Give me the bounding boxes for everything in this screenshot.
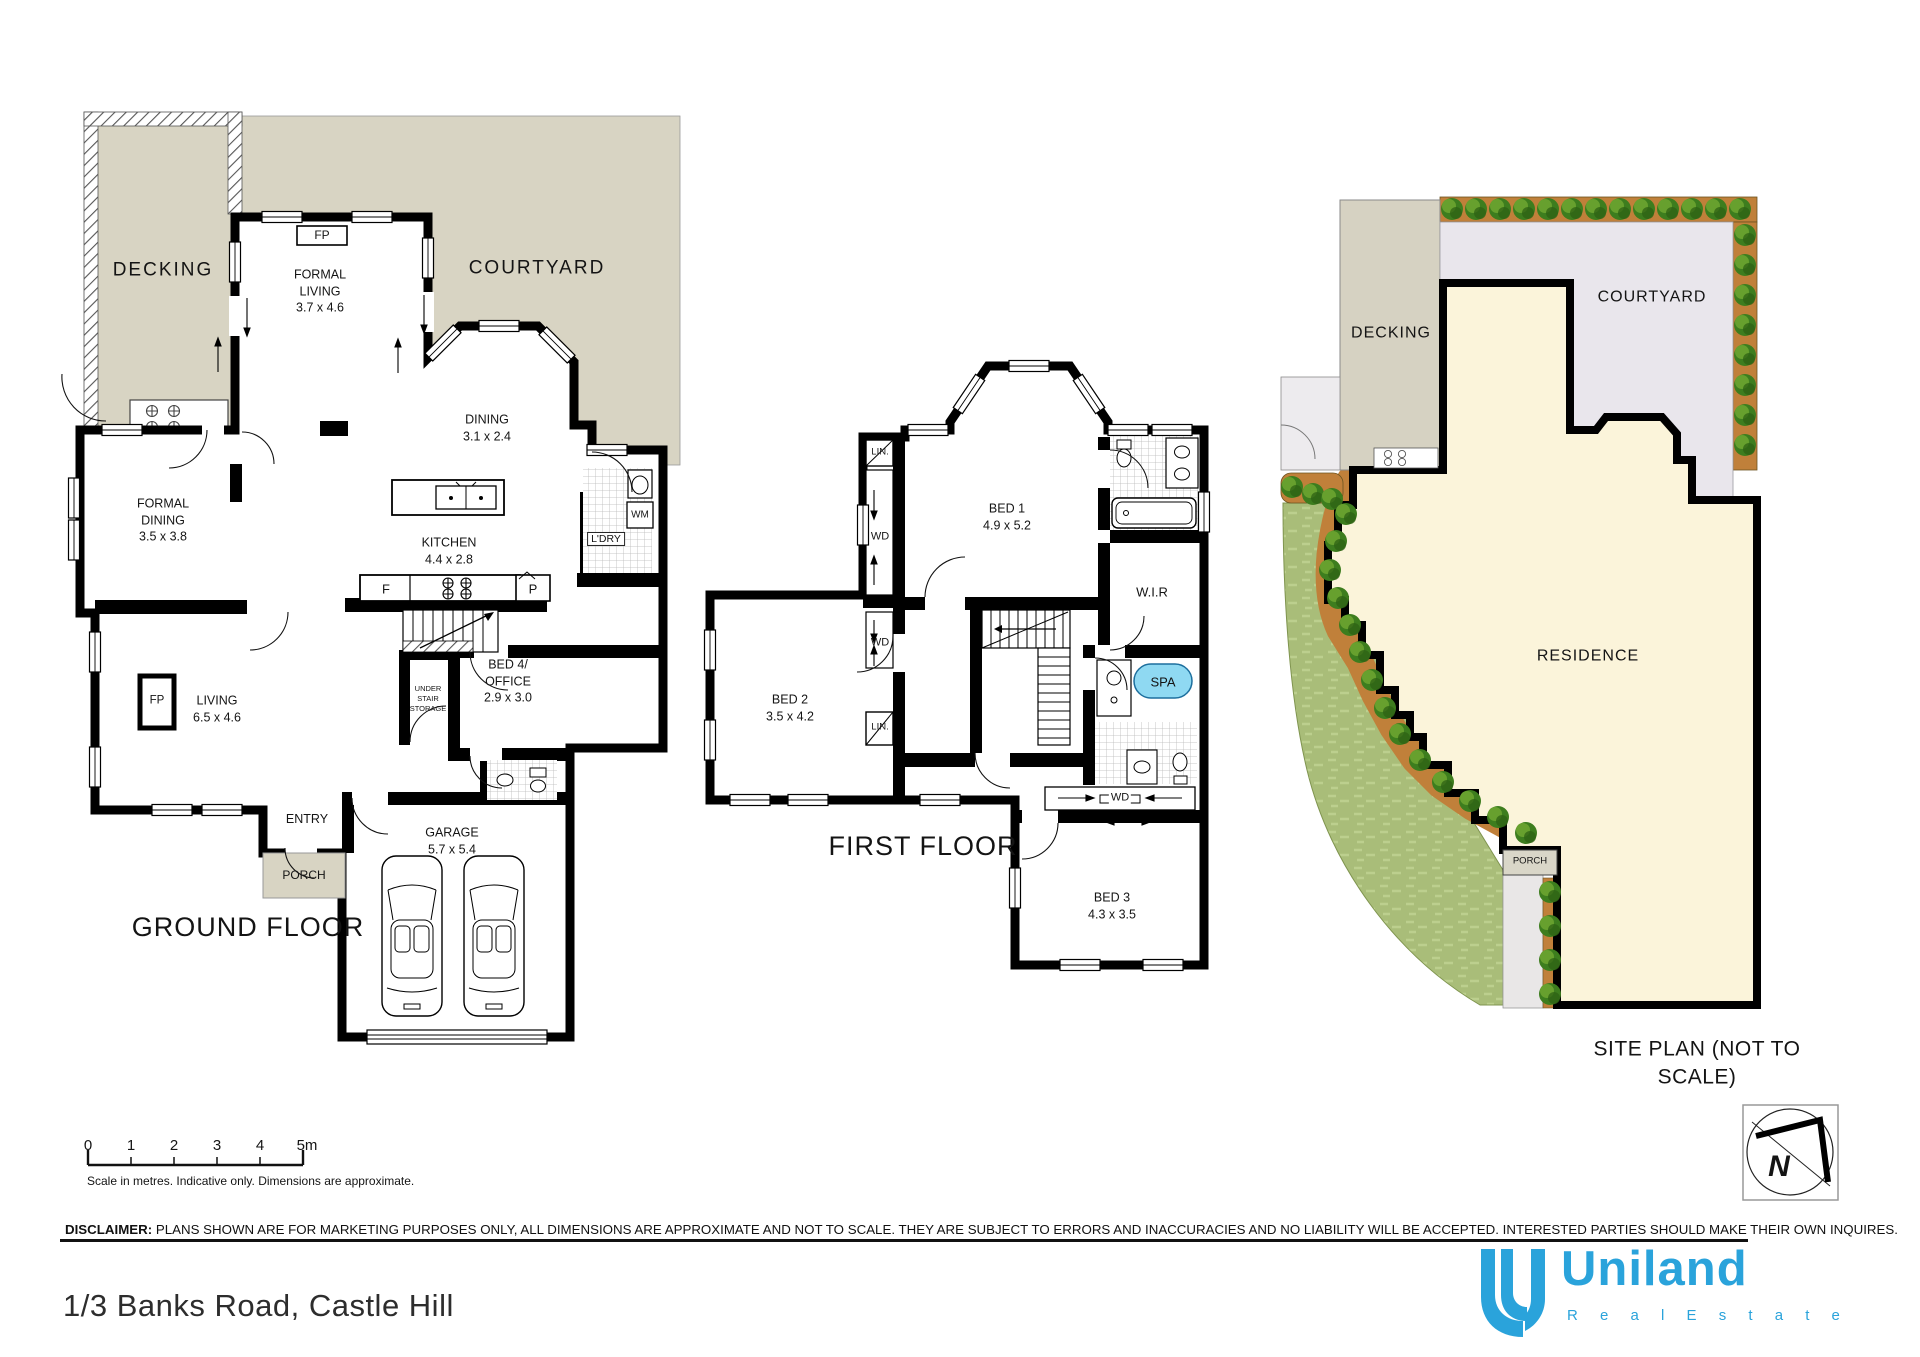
first-floor-graphic: [705, 361, 1210, 971]
room-label-bed4: BED 4/ OFFICE 2.9 x 3.0: [484, 656, 532, 706]
scale-tick-1: 1: [127, 1136, 135, 1156]
gf-entry-label: ENTRY: [286, 811, 328, 828]
room-label-formal-dining: FORMAL DINING 3.5 x 3.8: [137, 495, 189, 545]
room-label-garage: GARAGE 5.7 x 5.4: [425, 825, 479, 858]
room-label-bed2: BED 2 3.5 x 4.2: [766, 692, 814, 725]
gf-pantry-label: P: [529, 580, 538, 597]
site-bbq: [1374, 448, 1438, 468]
site-plan-graphic: [1281, 197, 1757, 1008]
scale-tick-5: 5m: [297, 1136, 318, 1156]
footer-divider: [60, 1239, 1748, 1242]
compass-n-letter: N: [1768, 1147, 1790, 1187]
gf-wm-label: WM: [631, 508, 649, 521]
gf-courtyard-label: COURTYARD: [469, 255, 606, 280]
gf-car-1: [382, 856, 442, 1016]
agency-logo: Uniland R e a l E s t a t e: [1475, 1247, 1875, 1355]
gf-fridge-label: F: [382, 580, 390, 597]
room-label-kitchen: KITCHEN 4.4 x 2.8: [422, 535, 477, 568]
site-path-left: [1281, 377, 1340, 470]
scale-caption: Scale in metres. Indicative only. Dimens…: [87, 1174, 414, 1190]
room-label-bed1: BED 1 4.9 x 5.2: [983, 501, 1031, 534]
disclaimer-text: DISCLAIMER: PLANS SHOWN ARE FOR MARKETIN…: [65, 1222, 1898, 1237]
scale-tick-4: 4: [256, 1136, 264, 1156]
room-label-living: LIVING 6.5 x 4.6: [193, 693, 241, 726]
gf-car-2: [464, 856, 524, 1016]
property-address: 1/3 Banks Road, Castle Hill: [63, 1288, 454, 1324]
uniland-wordmark: Uniland: [1561, 1241, 1748, 1297]
site-decking-label: DECKING: [1351, 322, 1431, 343]
ground-floor-graphic: [62, 112, 680, 1044]
site-plan-title: SITE PLAN (NOT TO SCALE): [1586, 1035, 1809, 1090]
ff-wd-top-label: WD: [871, 530, 889, 545]
scale-tick-0: 0: [84, 1136, 92, 1156]
north-arrow: [1743, 1105, 1838, 1200]
gf-under-stair-label: UNDER STAIR STORAGE: [410, 684, 447, 714]
gf-porch-label: PORCH: [282, 868, 325, 884]
room-label-formal-living: FORMAL LIVING 3.7 x 4.6: [294, 266, 346, 316]
ff-wir-label: W.I.R: [1136, 583, 1168, 600]
plan-canvas: [0, 0, 1920, 1357]
first-floor-title: FIRST FLOOR: [828, 829, 1017, 865]
scale-bar-graphic: [88, 1150, 303, 1165]
gf-fp-formal-label: FP: [314, 228, 329, 244]
disclaimer-label: DISCLAIMER:: [65, 1222, 152, 1237]
ff-lin-top-label: LIN.: [871, 447, 888, 460]
room-label-dining: DINING 3.1 x 2.4: [463, 412, 511, 445]
ff-spa-label: SPA: [1150, 673, 1175, 690]
gf-laundry-label: L'DRY: [587, 532, 625, 546]
ff-wd-mid-label: WD: [871, 636, 889, 651]
site-residence-label: RESIDENCE: [1537, 645, 1639, 666]
ground-floor-title: GROUND FLOOR: [132, 910, 365, 946]
uniland-tagline: R e a l E s t a t e: [1567, 1307, 1849, 1324]
floorplan-page: DECKING COURTYARD FP FORMAL LIVING 3.7 x…: [0, 0, 1920, 1357]
gf-fp-living-label: FP: [150, 693, 165, 708]
site-driveway: [1503, 875, 1543, 1008]
site-courtyard-label: COURTYARD: [1598, 286, 1707, 307]
site-porch-label: PORCH: [1513, 856, 1547, 869]
uniland-logo-mark: [1475, 1247, 1555, 1347]
scale-tick-3: 3: [213, 1136, 221, 1156]
ff-lin-mid-label: LIN.: [871, 722, 888, 735]
ff-wd-bed3-label: WD: [1109, 791, 1131, 806]
gf-decking-label: DECKING: [113, 257, 214, 282]
gf-stairs: [403, 610, 498, 652]
room-label-bed3: BED 3 4.3 x 3.5: [1088, 890, 1136, 923]
scale-tick-2: 2: [170, 1136, 178, 1156]
